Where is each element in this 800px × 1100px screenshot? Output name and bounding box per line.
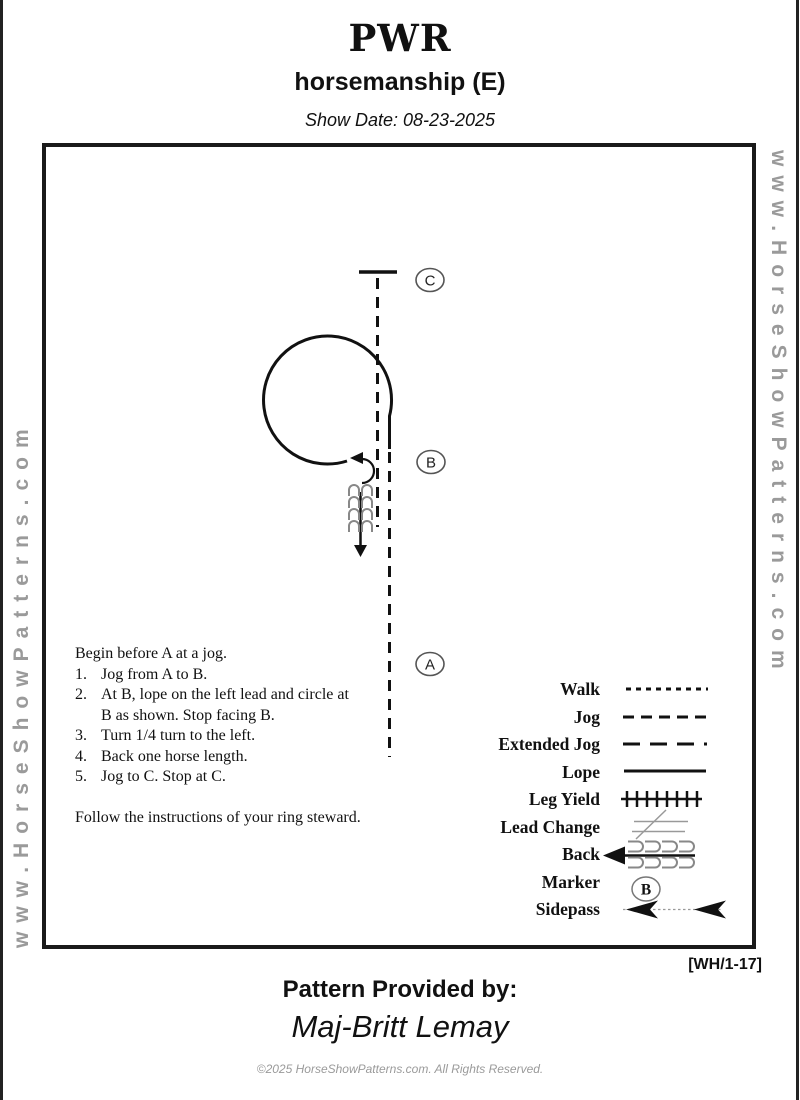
instruction-step: 1. Jog from A to B. <box>75 665 420 686</box>
instructions-note: Follow the instructions of your ring ste… <box>75 808 420 829</box>
step-number: 1. <box>75 665 101 686</box>
pattern-code: [WH/1-17] <box>688 956 762 974</box>
pattern-sheet: PWR horsemanship (E) Show Date: 08-23-20… <box>0 0 800 1100</box>
provided-by-heading: Pattern Provided by: <box>0 976 800 1004</box>
step-text: Jog to C. Stop at C. <box>101 767 226 788</box>
step-number: 3. <box>75 726 101 747</box>
step-text: Jog from A to B. <box>101 665 207 686</box>
watermark-right: www.HorseShowPatterns.com <box>766 150 790 678</box>
instruction-step: 2. At B, lope on the left lead and circl… <box>75 685 420 726</box>
instruction-step: 5. Jog to C. Stop at C. <box>75 767 420 788</box>
legend-label-jog: Jog <box>380 706 600 728</box>
page-title: PWR <box>0 16 800 60</box>
legend-label-leg-yield: Leg Yield <box>380 788 600 810</box>
page-edge-right <box>796 0 799 1100</box>
instruction-step: 3. Turn 1/4 turn to the left. <box>75 726 420 747</box>
instruction-step: 4. Back one horse length. <box>75 747 420 768</box>
legend-label-back: Back <box>380 843 600 865</box>
step-number: 4. <box>75 747 101 768</box>
show-date: Show Date: 08-23-2025 <box>0 110 800 131</box>
watermark-left: www.HorseShowPatterns.com <box>10 420 34 948</box>
copyright-line: ©2025 HorseShowPatterns.com. All Rights … <box>0 1062 800 1076</box>
instructions-intro: Begin before A at a jog. <box>75 644 420 665</box>
step-text: Turn 1/4 turn to the left. <box>101 726 255 747</box>
class-subtitle: horsemanship (E) <box>0 68 800 97</box>
page-edge-left <box>0 0 3 1100</box>
instructions-block: Begin before A at a jog. 1. Jog from A t… <box>75 644 420 828</box>
legend-label-lead-change: Lead Change <box>380 816 600 838</box>
legend-label-walk: Walk <box>380 678 600 700</box>
step-text: At B, lope on the left lead and circle a… <box>101 685 349 726</box>
legend-label-sidepass: Sidepass <box>380 898 600 920</box>
provider-name: Maj-Britt Lemay <box>0 1009 800 1045</box>
step-text: Back one horse length. <box>101 747 248 768</box>
legend-label-marker: Marker <box>380 871 600 893</box>
step-number: 5. <box>75 767 101 788</box>
legend-label-lope: Lope <box>380 761 600 783</box>
step-number: 2. <box>75 685 101 726</box>
legend-label-extended-jog: Extended Jog <box>380 733 600 755</box>
